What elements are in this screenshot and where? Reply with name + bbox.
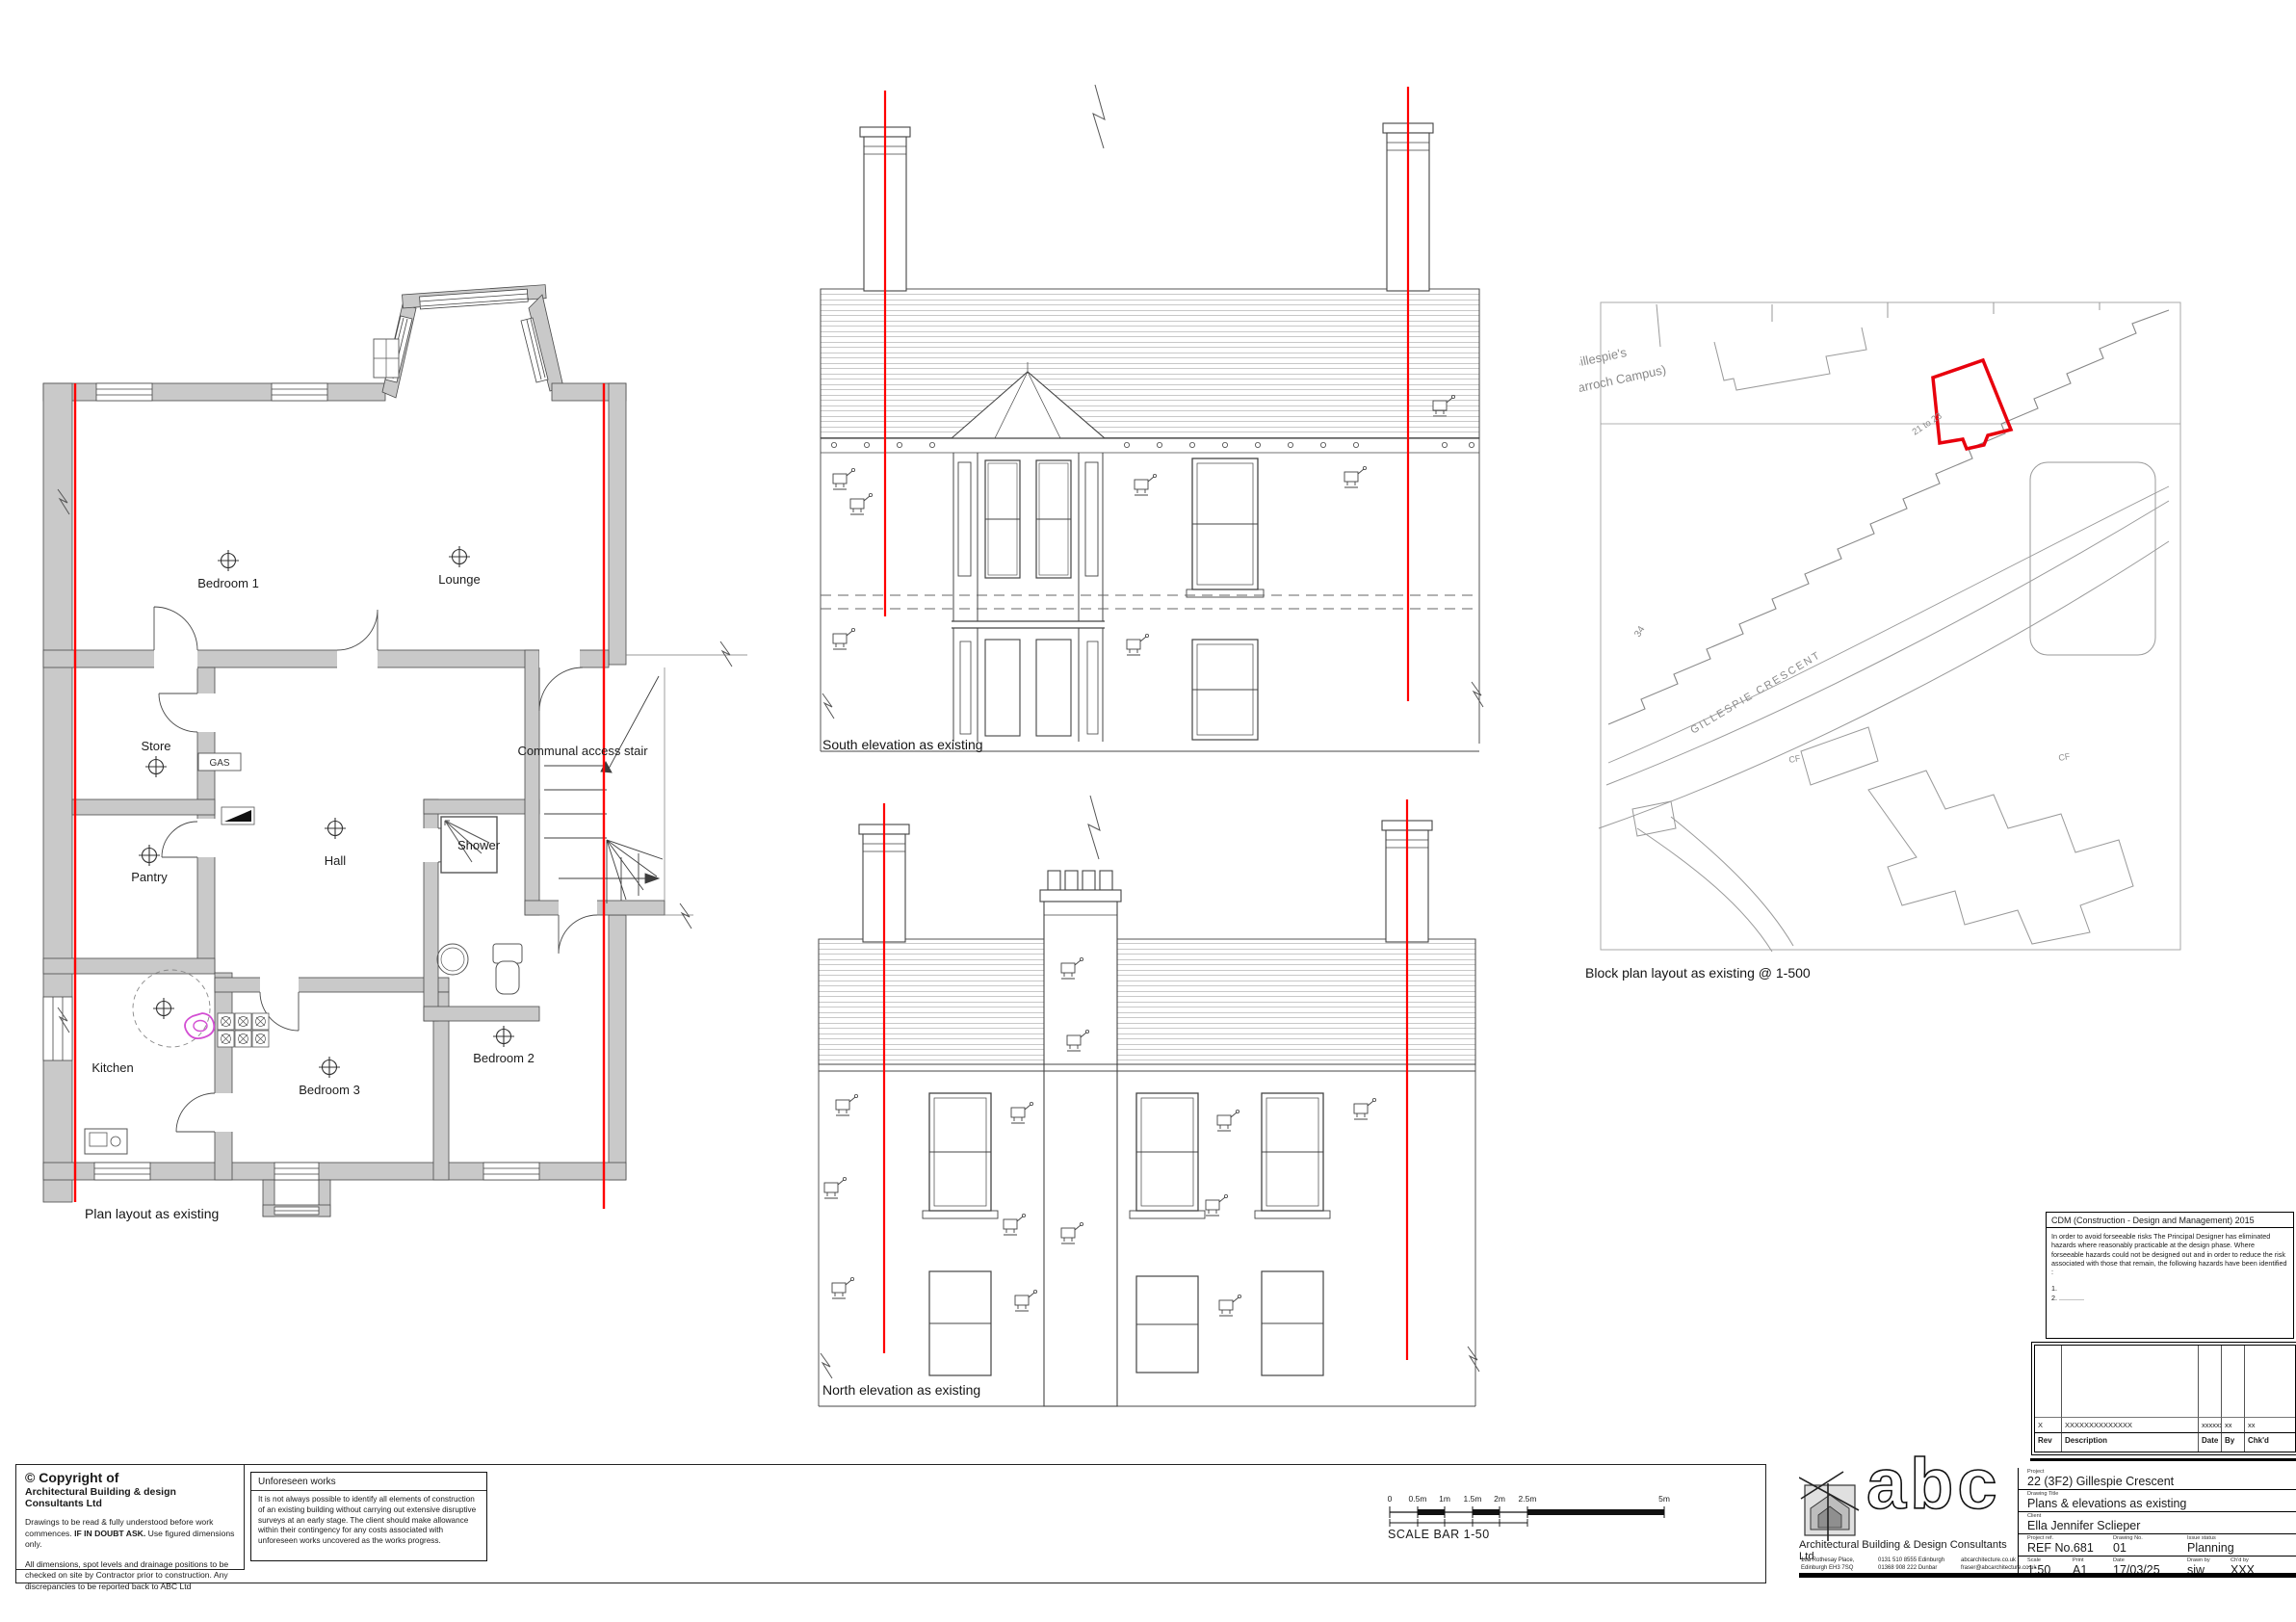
- scale-tick-5: 5m: [1658, 1494, 1670, 1504]
- revision-header-description: Description: [2062, 1432, 2199, 1452]
- sash-windows: [1187, 458, 1264, 740]
- title-block: abc Architectural Building & Design Cons…: [1799, 1468, 2296, 1578]
- scale-tick-25: 2.5m: [1519, 1494, 1537, 1504]
- house-number-label: 34: [1632, 624, 1647, 640]
- campus-name-label: Gillespie's: [1579, 345, 1629, 371]
- revision-table: X XXXXXXXXXXXXXX xxxxxx xx xx Rev Descri…: [2034, 1345, 2296, 1452]
- copyright-para-2: All dimensions, spot levels and drainage…: [25, 1559, 235, 1593]
- campus-buildings: [1601, 302, 2180, 424]
- north-elevation-caption: North elevation as existing: [822, 1382, 980, 1398]
- copyright-company: Architectural Building & design Consulta…: [25, 1486, 235, 1509]
- scale-tick-2: 2m: [1494, 1494, 1505, 1504]
- street-curbs: [1599, 501, 2169, 952]
- abc-logo-text: abc: [1866, 1443, 2001, 1525]
- cdm-title: CDM (Construction - Design and Managemen…: [2047, 1213, 2293, 1228]
- copyright-para-1: Drawings to be read & fully understood b…: [25, 1517, 235, 1551]
- address-line-2: Edinburgh EH3 7SQ: [1801, 1564, 1854, 1572]
- plan-windows: [43, 289, 548, 1180]
- title-block-bottom-bar: [1799, 1573, 2296, 1578]
- scale-tick-0: 0: [1388, 1494, 1393, 1504]
- scale-bar-graphic: [1390, 1506, 1664, 1527]
- block-plan-drawing: Gillespie's (Darroch Campus) GILLESPIE C…: [1579, 289, 2196, 963]
- room-label-hall: Hall: [325, 853, 347, 868]
- company-address: 18a Rothesay Place, Edinburgh EH3 7SQ: [1801, 1557, 1854, 1572]
- scale-tick-15: 1.5m: [1464, 1494, 1482, 1504]
- company-phones: 0131 510 8555 Edinburgh 01368 908 222 Du…: [1878, 1557, 1944, 1572]
- cf-label-2: CF: [2058, 751, 2072, 763]
- address-line-1: 18a Rothesay Place,: [1801, 1557, 1854, 1564]
- floor-plan-drawing: GAS Bedroom 1 Lounge Store Pantry Hall: [19, 279, 751, 1218]
- client-value: Ella Jennifer Sclieper: [2027, 1519, 2140, 1532]
- revision-header-by: By: [2222, 1432, 2245, 1452]
- revision-cell-by: xx: [2222, 1417, 2245, 1432]
- revision-header-date: Date: [2199, 1432, 2222, 1452]
- room-label-shower: Shower: [457, 838, 501, 852]
- plan-caption: Plan layout as existing: [85, 1206, 219, 1221]
- phone-line-1: 0131 510 8555 Edinburgh: [1878, 1557, 1944, 1564]
- room-label-stair: Communal access stair: [517, 744, 648, 758]
- eaves-lines: [819, 1064, 1475, 1071]
- cornice: [821, 438, 1479, 453]
- scale-bar-tick-labels: 0 0.5m 1m 1.5m 2m 2.5m 5m: [1388, 1494, 1670, 1504]
- frontage-line: [1608, 486, 2169, 763]
- phone-line-2: 01368 908 222 Dunbar: [1878, 1564, 1944, 1572]
- unforeseen-body: It is not always possible to identify al…: [251, 1491, 486, 1551]
- terrace-row: [1608, 310, 2169, 724]
- street-label: GILLESPIE CRESCENT: [1688, 649, 1823, 737]
- cdm-note: CDM (Construction - Design and Managemen…: [2046, 1212, 2294, 1339]
- cdm-body: In order to avoid forseeable risks The P…: [2047, 1228, 2293, 1277]
- neighbour-buildings: [1632, 462, 2155, 944]
- gas-label: GAS: [209, 758, 229, 769]
- revision-table-bottom-bar: [2030, 1458, 2296, 1461]
- plan-bottom-bay: [263, 1180, 330, 1216]
- revision-header-rev: Rev: [2035, 1432, 2062, 1452]
- chimney-center: [1040, 871, 1121, 1406]
- upper-windows: [923, 1093, 1330, 1218]
- break-mark: [720, 641, 732, 667]
- cdm-item-2: 2. .............: [2047, 1293, 2293, 1302]
- block-plan-caption: Block plan layout as existing @ 1-500: [1585, 965, 1811, 981]
- revision-cell-date: xxxxxx: [2199, 1417, 2222, 1432]
- south-elevation-caption: South elevation as existing: [822, 737, 983, 752]
- project-value: 22 (3F2) Gillespie Crescent: [2027, 1475, 2174, 1488]
- issue-status-value: Planning: [2187, 1541, 2234, 1555]
- title-block-fields: Project 22 (3F2) Gillespie Crescent Draw…: [2018, 1468, 2296, 1573]
- roof-slates: [821, 289, 1479, 438]
- lower-windows: [929, 1271, 1323, 1375]
- break-mark: [821, 1353, 832, 1378]
- room-label-bedroom1: Bedroom 1: [197, 576, 259, 590]
- copyright-para1-bold: IF IN DOUBT ASK.: [74, 1529, 145, 1538]
- revision-header-chkd: Chk'd: [2245, 1432, 2295, 1452]
- drawing-sheet: GAS Bedroom 1 Lounge Store Pantry Hall: [0, 0, 2296, 1622]
- scale-tick-1: 1m: [1439, 1494, 1450, 1504]
- ridge-break-mark: [1093, 85, 1105, 148]
- scale-tick-05: 0.5m: [1409, 1494, 1427, 1504]
- copyright-title: © Copyright of: [25, 1470, 235, 1485]
- break-mark: [1468, 1347, 1479, 1372]
- campus-sub-label: (Darroch Campus): [1579, 362, 1667, 398]
- unforeseen-title: Unforeseen works: [251, 1473, 486, 1491]
- drawing-title-value: Plans & elevations as existing: [2027, 1497, 2186, 1510]
- room-label-bedroom3: Bedroom 3: [299, 1083, 360, 1097]
- scale-bar-caption: SCALE BAR 1-50: [1388, 1528, 1490, 1541]
- map-labels: Gillespie's (Darroch Campus) GILLESPIE C…: [1579, 345, 2072, 765]
- north-elevation-drawing: [809, 790, 1483, 1416]
- break-mark: [822, 693, 834, 719]
- break-mark: [1472, 682, 1483, 707]
- communal-stair: [544, 655, 747, 915]
- revision-cell-rev: X: [2035, 1417, 2062, 1432]
- ridge-break-mark: [1088, 796, 1100, 859]
- room-label-store: Store: [141, 739, 170, 753]
- south-elevation-drawing: [809, 77, 1493, 761]
- unforeseen-works-note: Unforeseen works It is not always possib…: [250, 1472, 487, 1561]
- room-label-lounge: Lounge: [438, 572, 480, 587]
- abc-logo-house-icon: [1799, 1470, 1866, 1543]
- drawing-no-value: 01: [2113, 1541, 2126, 1555]
- roof-slates: [819, 939, 1475, 1064]
- room-label-bedroom2: Bedroom 2: [473, 1051, 535, 1065]
- map-frame: [1601, 302, 2180, 950]
- room-label-pantry: Pantry: [131, 870, 168, 884]
- copyright-note: © Copyright of Architectural Building & …: [15, 1464, 245, 1570]
- break-mark: [680, 903, 691, 929]
- revision-cell-description: XXXXXXXXXXXXXX: [2062, 1417, 2199, 1432]
- cdm-item-1: 1.: [2047, 1283, 2293, 1293]
- project-ref-value: REF No.681: [2027, 1541, 2094, 1555]
- level-dashed-lines: [821, 595, 1479, 609]
- cf-label-1: CF: [1788, 753, 1802, 765]
- room-label-kitchen: Kitchen: [91, 1060, 133, 1075]
- bay-windows: [952, 453, 1105, 742]
- revision-cell-chkd: xx: [2245, 1417, 2295, 1432]
